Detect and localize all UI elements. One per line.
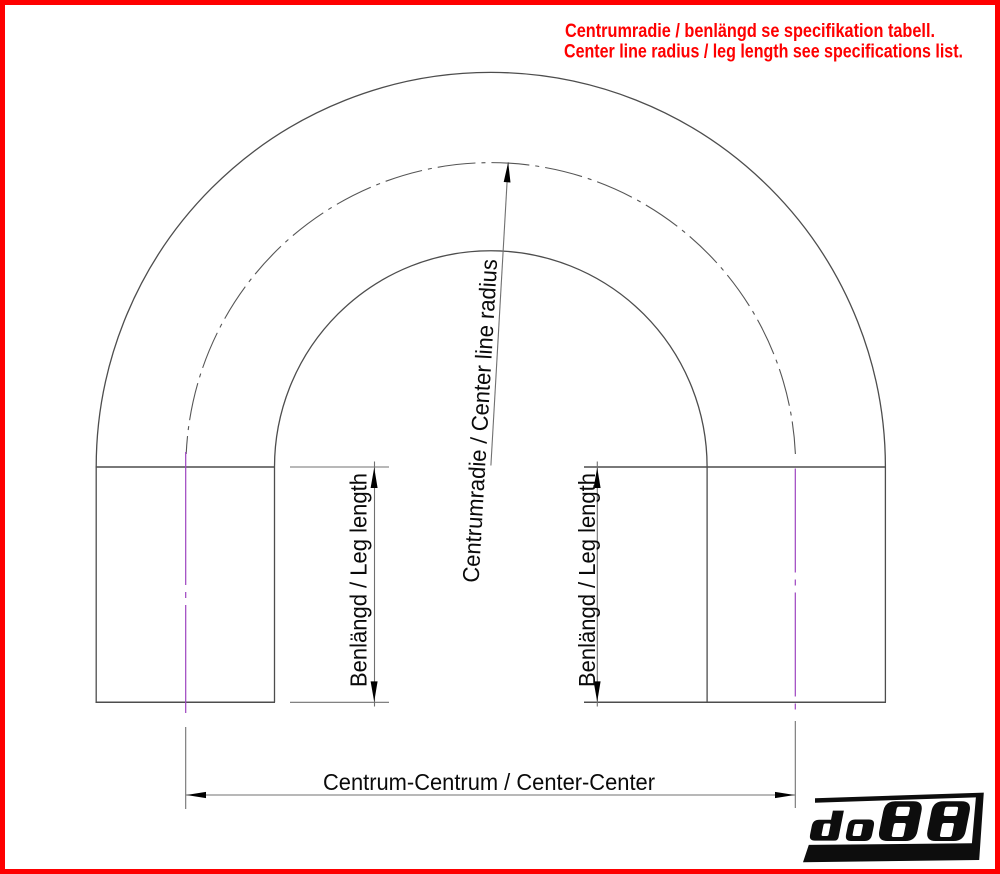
svg-text:Centrum-Centrum / Center-Cente: Centrum-Centrum / Center-Center xyxy=(323,769,655,795)
svg-text:Center line radius / leg lengt: Center line radius / leg length see spec… xyxy=(564,40,963,62)
svg-text:Centrumradie / benlängd se spe: Centrumradie / benlängd se specifikation… xyxy=(565,20,935,42)
svg-text:Benlängd / Leg length: Benlängd / Leg length xyxy=(346,473,372,687)
svg-text:Benlängd / Leg length: Benlängd / Leg length xyxy=(574,473,600,687)
